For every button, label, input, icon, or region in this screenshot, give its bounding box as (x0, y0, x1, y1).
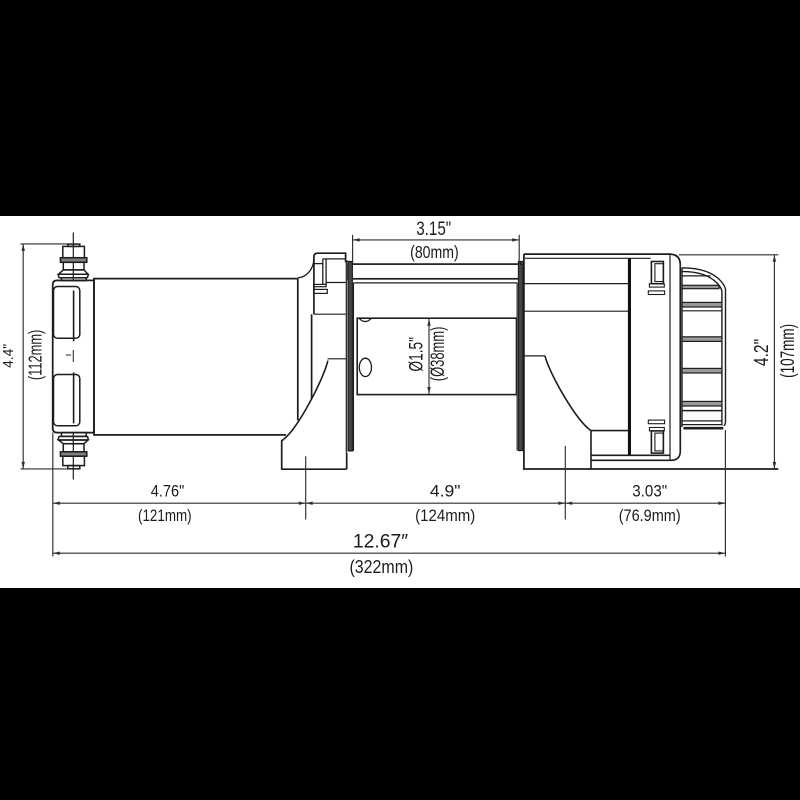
svg-text:(107mm): (107mm) (778, 324, 799, 378)
svg-text:4.9": 4.9" (430, 481, 461, 500)
svg-text:4.2": 4.2" (751, 339, 773, 366)
svg-text:12.67″: 12.67″ (353, 532, 408, 553)
svg-text:3.15": 3.15" (416, 218, 451, 240)
svg-text:4.76": 4.76" (151, 481, 185, 500)
svg-text:(112mm): (112mm) (26, 330, 46, 380)
svg-text:Ø1.5": Ø1.5" (406, 337, 428, 372)
svg-text:(124mm): (124mm) (415, 506, 475, 525)
svg-text:(Ø38mm): (Ø38mm) (428, 327, 449, 382)
svg-text:(76.9mm): (76.9mm) (619, 506, 681, 525)
svg-text:3.03": 3.03" (632, 481, 667, 500)
svg-text:(80mm): (80mm) (410, 242, 459, 262)
svg-text:4.4": 4.4" (0, 344, 17, 368)
svg-text:(322mm): (322mm) (350, 556, 414, 577)
svg-text:(121mm): (121mm) (138, 506, 192, 525)
